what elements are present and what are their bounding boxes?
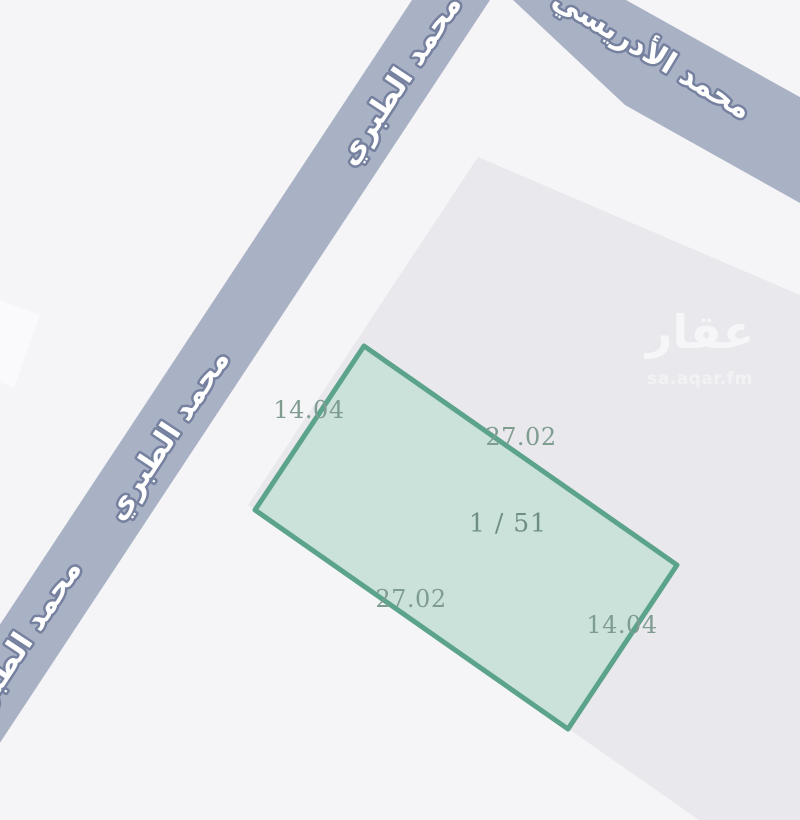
dimension-label-ne: 27.02 bbox=[485, 423, 556, 451]
watermark-site-url: sa.aqar.fm bbox=[647, 369, 753, 389]
dimension-label-se: 14.04 bbox=[586, 611, 657, 639]
map-view[interactable]: عقار sa.aqar.fm محمد الطبري محمد الطبري … bbox=[0, 0, 800, 820]
map-canvas[interactable]: عقار sa.aqar.fm محمد الطبري محمد الطبري … bbox=[0, 0, 800, 820]
watermark-logo: عقار bbox=[644, 305, 754, 359]
parcel-number-label: 1 / 51 bbox=[469, 509, 547, 538]
dimension-label-sw: 27.02 bbox=[375, 585, 446, 613]
dimension-label-nw: 14.04 bbox=[273, 396, 344, 424]
